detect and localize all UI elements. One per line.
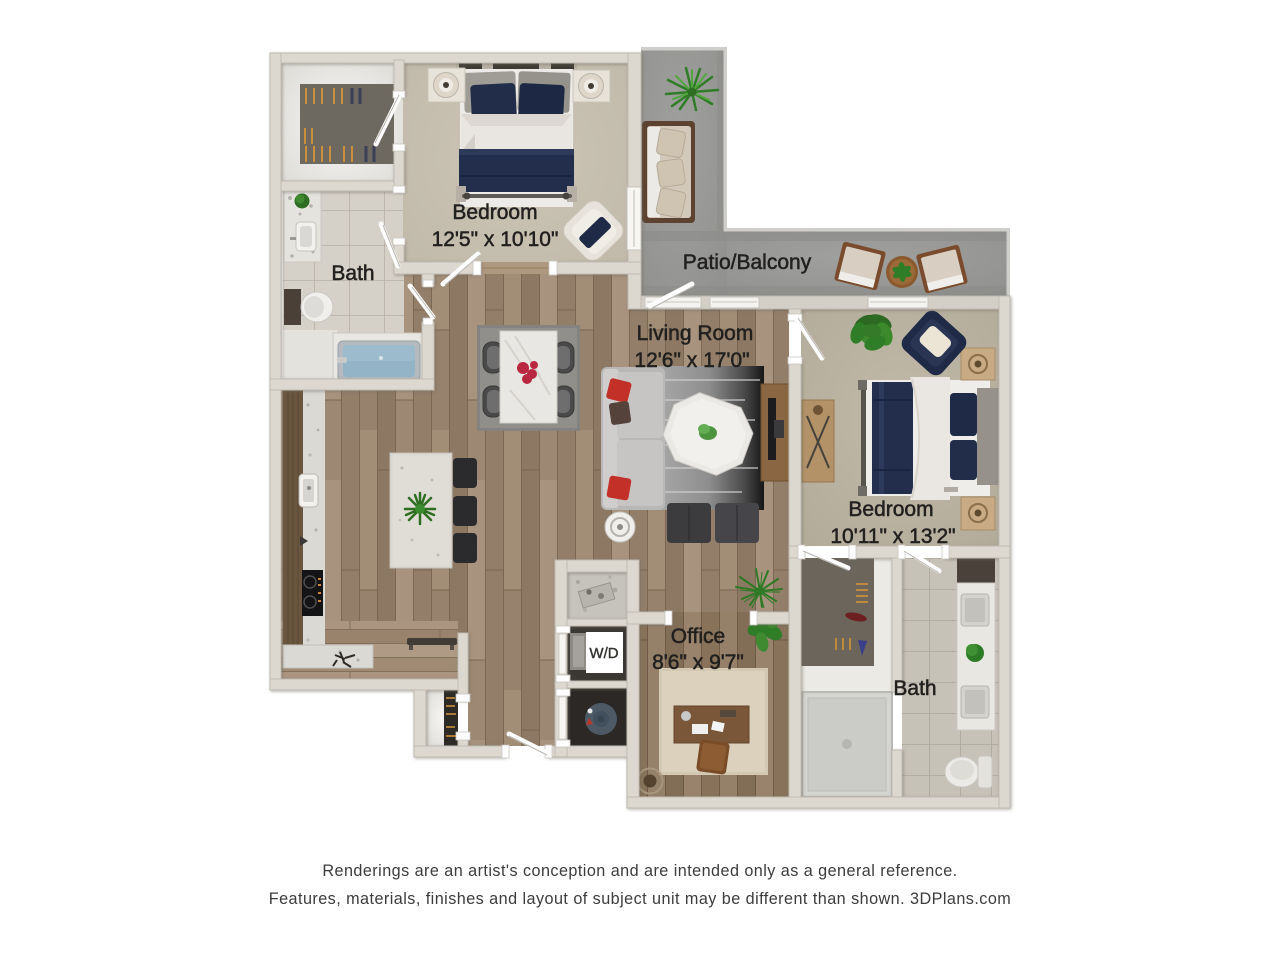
svg-text:8'6" x 9'7": 8'6" x 9'7" [652, 651, 744, 674]
svg-text:W/D: W/D [589, 645, 618, 662]
svg-text:Living Room: Living Room [637, 322, 754, 345]
svg-text:Renderings are an artist's con: Renderings are an artist's conception an… [322, 862, 957, 880]
svg-text:12'5" x 10'10": 12'5" x 10'10" [432, 228, 559, 251]
svg-text:Bedroom: Bedroom [452, 201, 537, 224]
svg-text:12'6" x 17'0": 12'6" x 17'0" [634, 349, 749, 372]
svg-text:10'11" x 13'2": 10'11" x 13'2" [830, 525, 955, 548]
svg-text:Bedroom: Bedroom [848, 498, 933, 521]
svg-text:Bath: Bath [331, 262, 374, 285]
svg-text:Features, materials, finishes: Features, materials, finishes and layout… [269, 890, 1011, 908]
svg-text:Office: Office [671, 625, 725, 648]
svg-text:Patio/Balcony: Patio/Balcony [683, 251, 812, 274]
svg-text:Bath: Bath [893, 677, 936, 700]
